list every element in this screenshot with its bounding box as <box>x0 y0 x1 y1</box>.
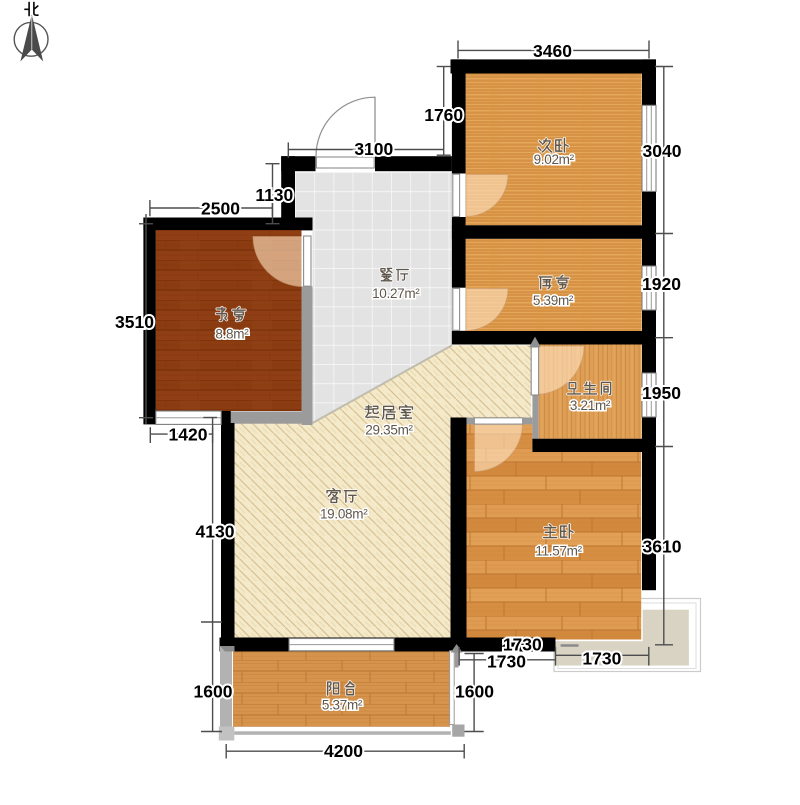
svg-text:3510: 3510 <box>115 312 154 332</box>
svg-text:3040: 3040 <box>643 141 682 161</box>
svg-text:3460: 3460 <box>533 41 572 61</box>
svg-text:10.27m²: 10.27m² <box>372 286 420 301</box>
svg-text:5.39m²: 5.39m² <box>533 293 574 308</box>
svg-text:2500: 2500 <box>201 199 240 219</box>
svg-text:1730: 1730 <box>503 635 542 655</box>
svg-text:3100: 3100 <box>354 139 393 159</box>
svg-text:1760: 1760 <box>424 105 463 125</box>
svg-text:9.02m²: 9.02m² <box>534 152 575 167</box>
svg-text:1600: 1600 <box>455 682 494 702</box>
svg-text:19.08m²: 19.08m² <box>320 507 368 522</box>
svg-text:1950: 1950 <box>642 383 681 403</box>
svg-text:3610: 3610 <box>643 537 682 557</box>
svg-text:1920: 1920 <box>642 274 681 294</box>
svg-text:4200: 4200 <box>324 741 363 761</box>
svg-text:1600: 1600 <box>194 682 233 702</box>
svg-text:1730: 1730 <box>582 649 621 669</box>
svg-text:1420: 1420 <box>169 424 208 444</box>
svg-text:4130: 4130 <box>196 522 235 542</box>
svg-text:5.37m²: 5.37m² <box>322 698 363 713</box>
svg-text:8.8m²: 8.8m² <box>215 326 249 341</box>
svg-text:29.35m²: 29.35m² <box>365 423 413 438</box>
svg-text:1130: 1130 <box>255 185 293 205</box>
svg-text:11.57m²: 11.57m² <box>535 543 582 558</box>
svg-text:3.21m²: 3.21m² <box>570 398 611 413</box>
